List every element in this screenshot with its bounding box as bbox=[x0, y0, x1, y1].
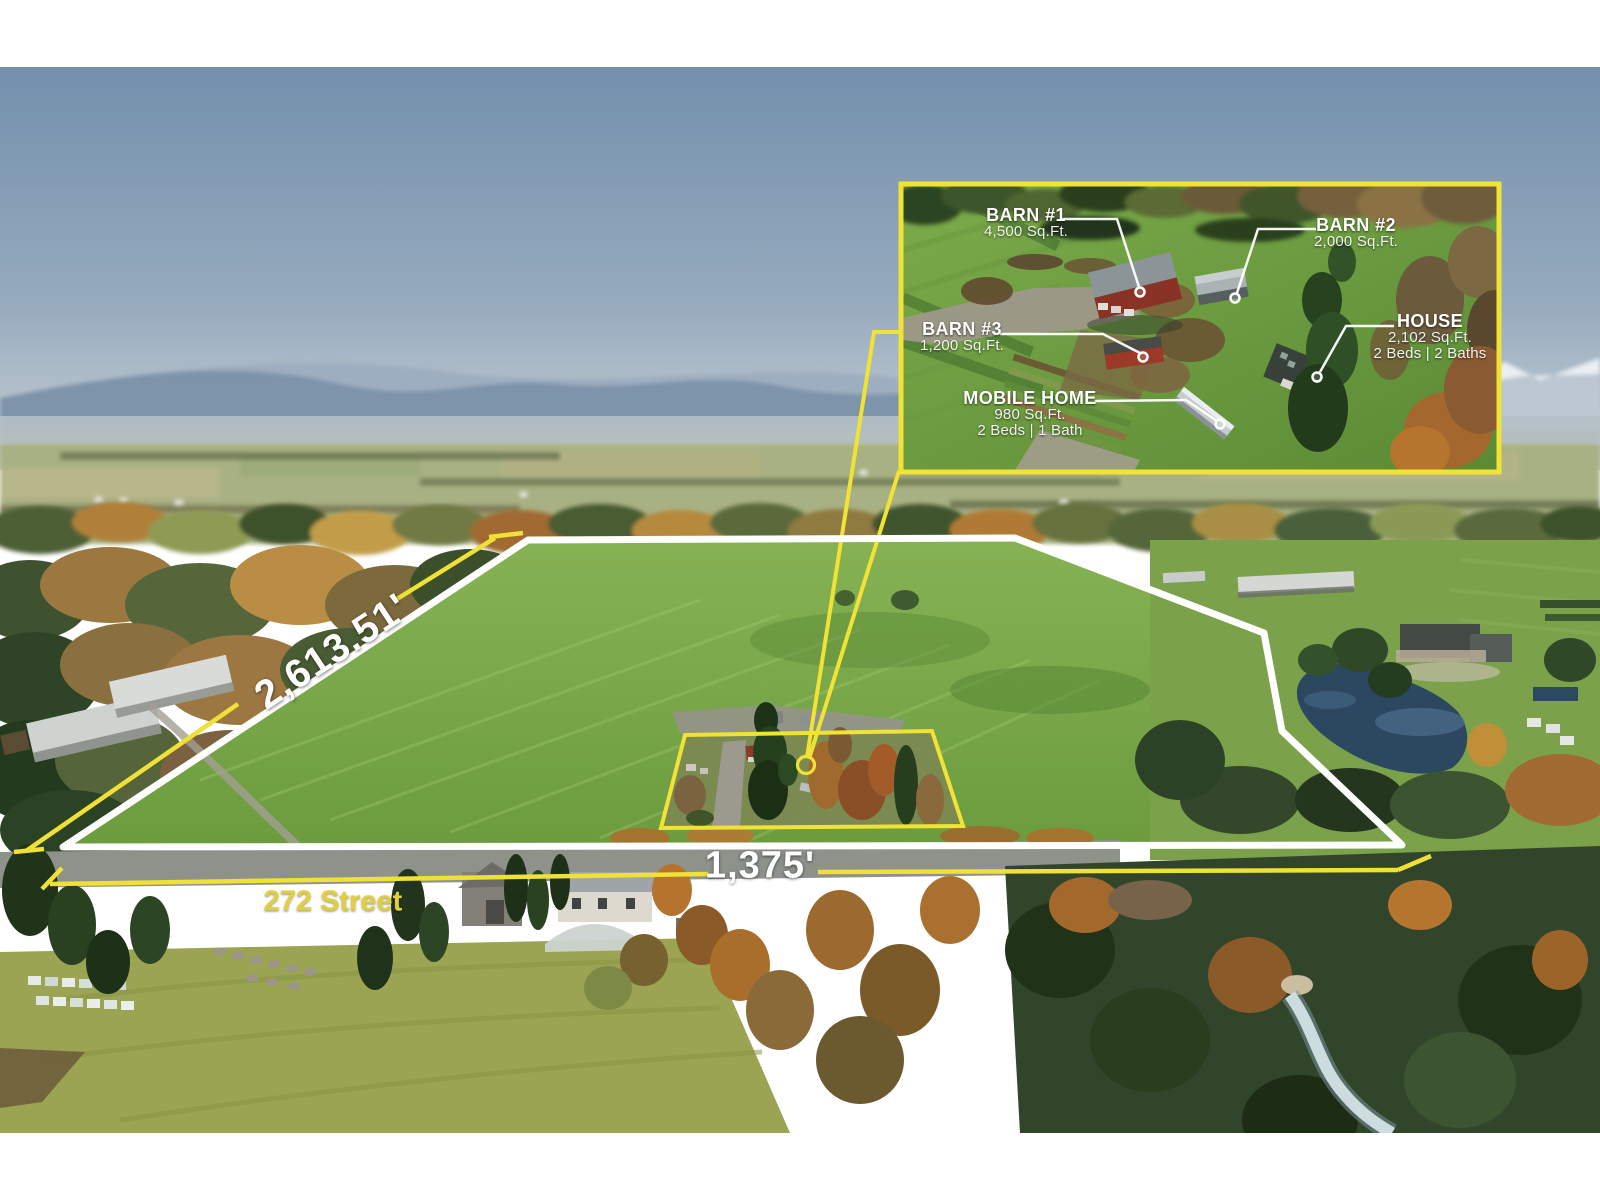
callout-barn3-name: BARN #3 bbox=[920, 321, 1004, 338]
foreground bbox=[0, 844, 1600, 1165]
marketing-image: 2,613.51' 1,375' 272 Street BARN #1 4,50… bbox=[0, 0, 1600, 1200]
aerial-photo bbox=[0, 0, 1600, 1200]
callout-house: HOUSE 2,102 Sq.Ft. 2 Beds | 2 Baths bbox=[1374, 313, 1487, 362]
callout-mobile-home-name: MOBILE HOME bbox=[963, 390, 1096, 407]
callout-mobile-home: MOBILE HOME 980 Sq.Ft. 2 Beds | 1 Bath bbox=[963, 390, 1096, 439]
frontage-dimension-label: 1,375' bbox=[705, 845, 815, 888]
callout-barn1-name: BARN #1 bbox=[984, 207, 1068, 224]
callout-house-rooms: 2 Beds | 2 Baths bbox=[1374, 346, 1487, 362]
callout-barn2-area: 2,000 Sq.Ft. bbox=[1314, 234, 1398, 250]
callout-barn1-area: 4,500 Sq.Ft. bbox=[984, 224, 1068, 240]
callout-mobile-home-rooms: 2 Beds | 1 Bath bbox=[963, 423, 1096, 439]
callout-mobile-home-area: 980 Sq.Ft. bbox=[963, 407, 1096, 423]
callout-barn1: BARN #1 4,500 Sq.Ft. bbox=[984, 207, 1068, 240]
street-name-label: 272 Street bbox=[264, 886, 403, 919]
callout-barn3: BARN #3 1,200 Sq.Ft. bbox=[920, 321, 1004, 354]
callout-barn3-area: 1,200 Sq.Ft. bbox=[920, 338, 1004, 354]
callout-barn2: BARN #2 2,000 Sq.Ft. bbox=[1314, 217, 1398, 250]
callout-barn2-name: BARN #2 bbox=[1314, 217, 1398, 234]
callout-house-area: 2,102 Sq.Ft. bbox=[1374, 330, 1487, 346]
callout-house-name: HOUSE bbox=[1374, 313, 1487, 330]
